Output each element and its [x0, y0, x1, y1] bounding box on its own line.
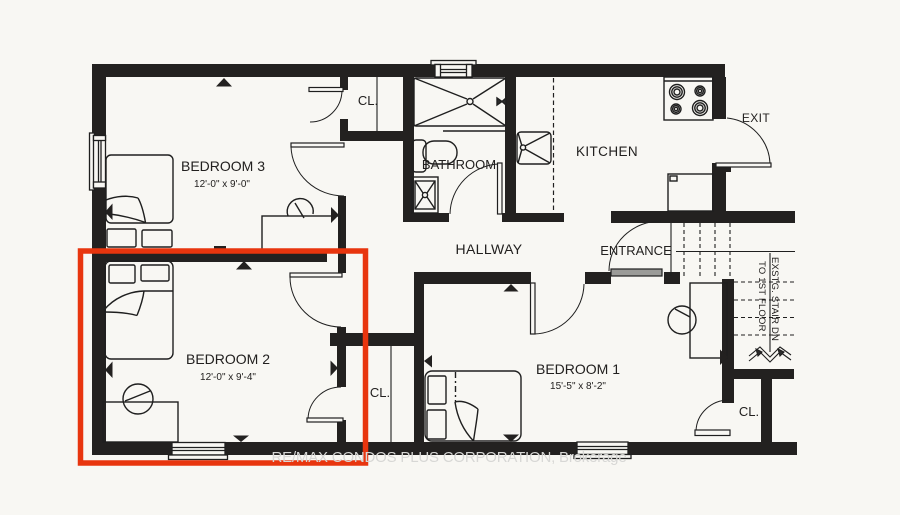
svg-text:12'-0" x 9'-0": 12'-0" x 9'-0" [194, 179, 250, 190]
svg-text:TO 1ST FLOOR: TO 1ST FLOOR [756, 261, 767, 332]
svg-text:CL.: CL. [739, 404, 759, 419]
svg-text:BEDROOM 3: BEDROOM 3 [181, 158, 265, 174]
svg-text:BEDROOM 1: BEDROOM 1 [536, 361, 620, 377]
svg-text:HALLWAY: HALLWAY [455, 241, 522, 257]
svg-text:RE/MAX CONDOS PLUS CORPORATION: RE/MAX CONDOS PLUS CORPORATION, Brokerag… [272, 449, 627, 466]
svg-text:ENTRANCE: ENTRANCE [600, 243, 672, 258]
svg-text:BEDROOM 2: BEDROOM 2 [186, 351, 270, 367]
svg-text:12'-0" x 9'-4": 12'-0" x 9'-4" [200, 372, 256, 383]
svg-text:BATHROOM: BATHROOM [422, 157, 496, 172]
svg-text:EXIT: EXIT [742, 111, 771, 125]
svg-text:CL.: CL. [370, 385, 390, 400]
svg-text:EXSTG. STAIR DN: EXSTG. STAIR DN [769, 257, 780, 341]
svg-text:15'-5" x 8'-2": 15'-5" x 8'-2" [550, 381, 606, 392]
svg-text:KITCHEN: KITCHEN [576, 144, 638, 159]
svg-text:CL.: CL. [358, 93, 378, 108]
